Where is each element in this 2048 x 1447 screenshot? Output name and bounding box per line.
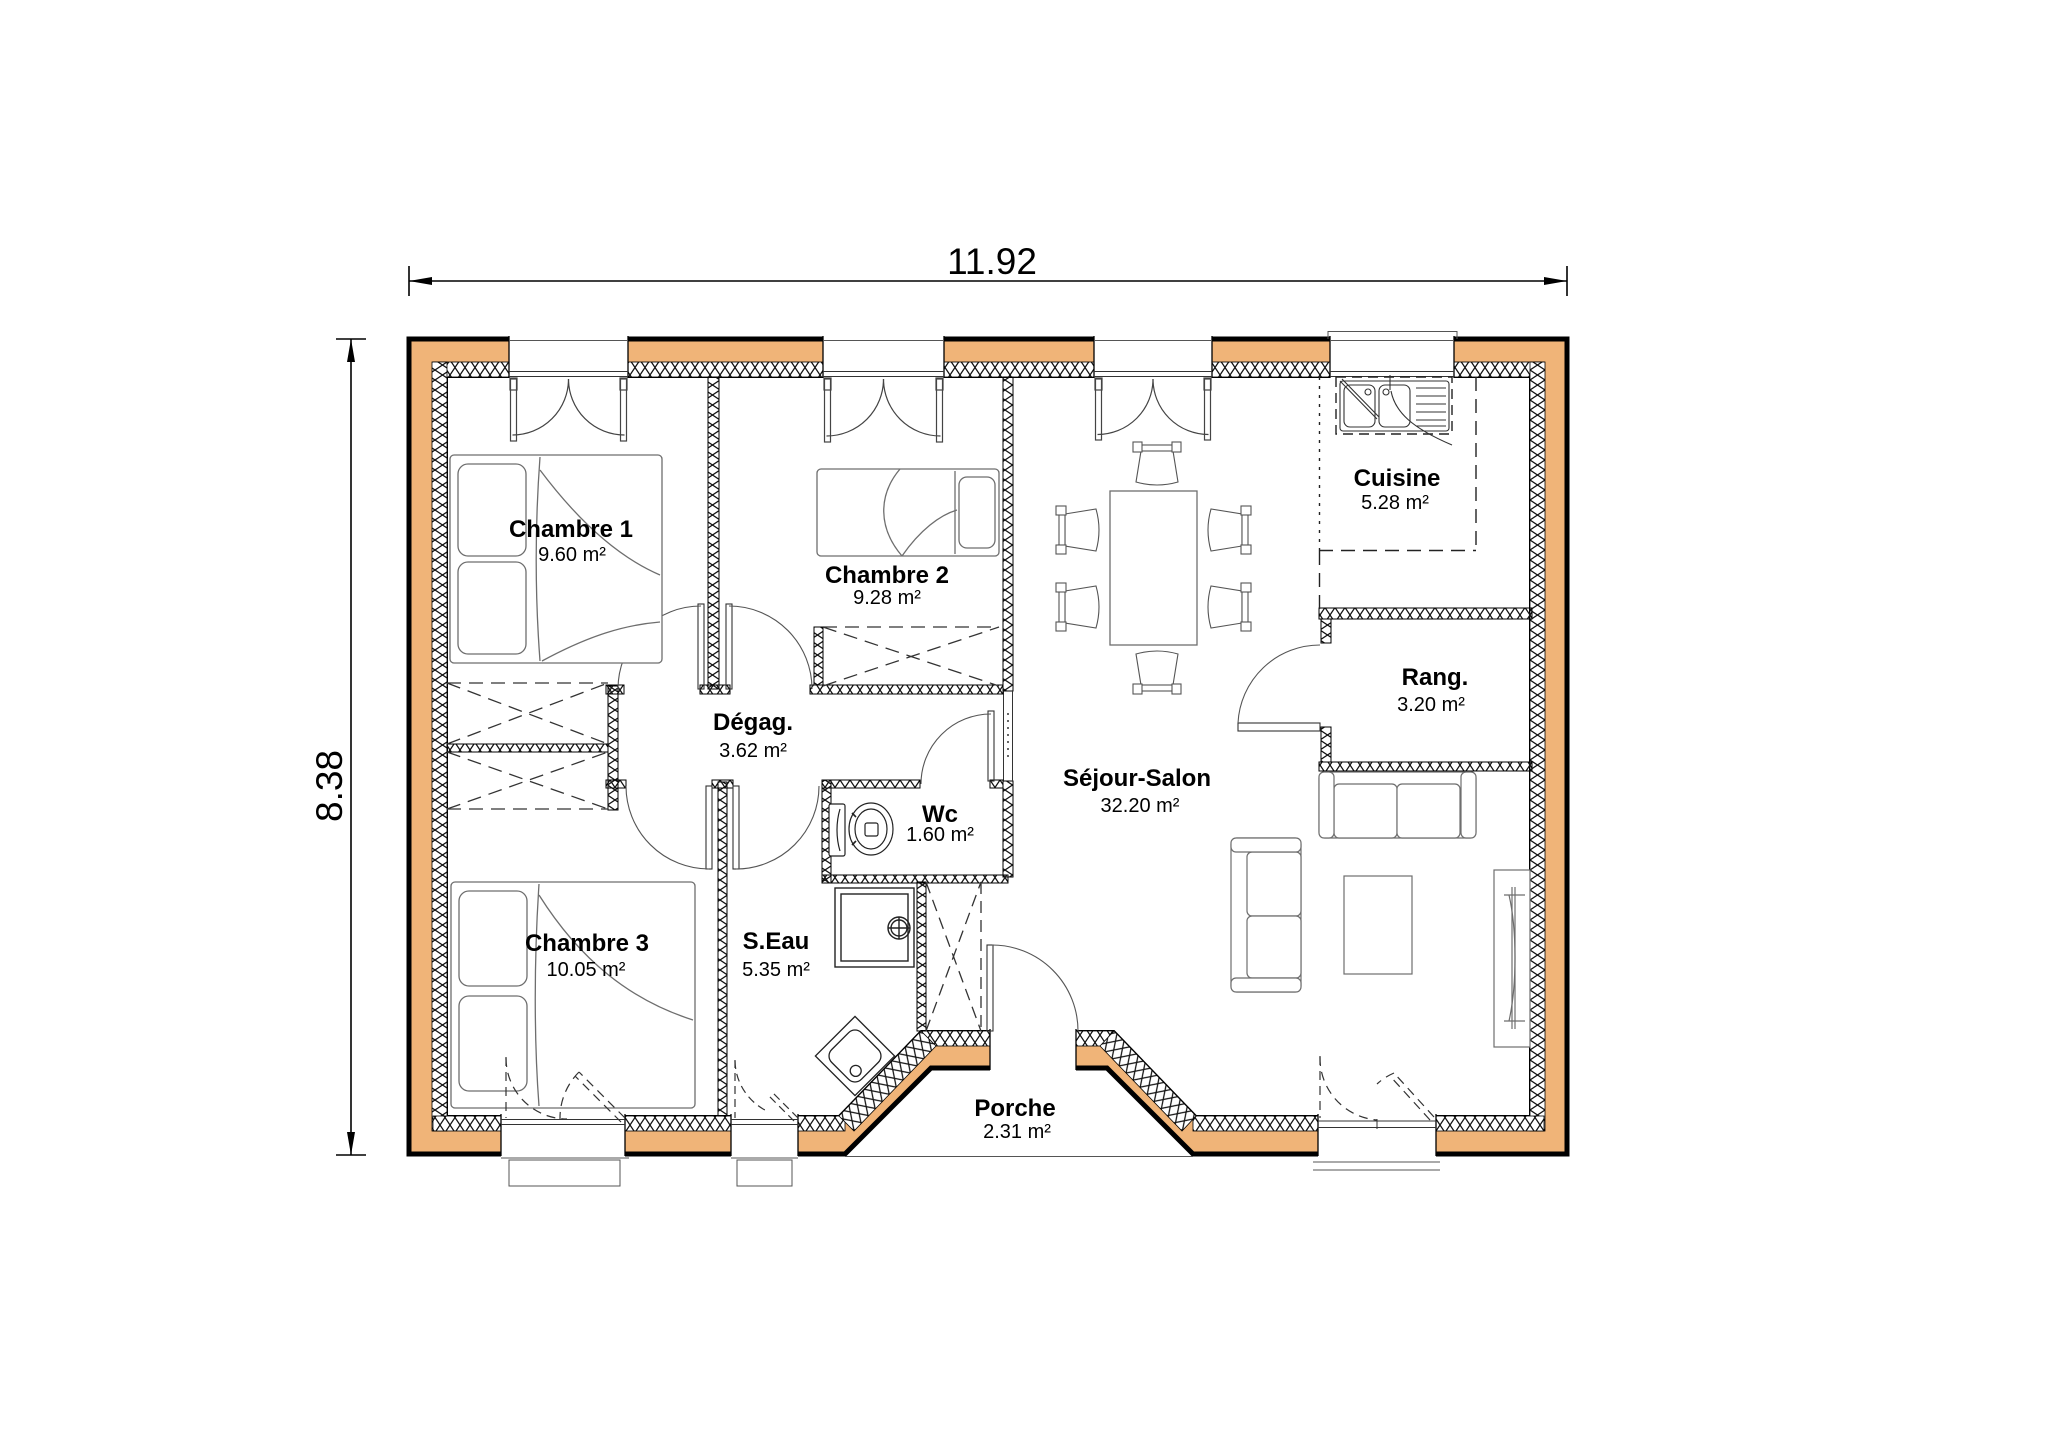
svg-text:1.60 m²: 1.60 m² <box>906 824 974 846</box>
svg-text:9.28 m²: 9.28 m² <box>853 587 921 609</box>
svg-text:Dégag.: Dégag. <box>713 709 793 736</box>
svg-text:2.31 m²: 2.31 m² <box>983 1121 1051 1143</box>
svg-text:Chambre 2: Chambre 2 <box>825 562 949 589</box>
svg-text:8.38: 8.38 <box>309 750 350 822</box>
svg-text:9.60 m²: 9.60 m² <box>538 544 606 566</box>
svg-text:32.20 m²: 32.20 m² <box>1101 795 1180 817</box>
svg-text:Séjour-Salon: Séjour-Salon <box>1063 765 1211 792</box>
svg-text:Chambre 1: Chambre 1 <box>509 516 633 543</box>
svg-text:Porche: Porche <box>974 1095 1055 1122</box>
svg-text:Cuisine: Cuisine <box>1354 465 1441 492</box>
svg-text:11.92: 11.92 <box>947 241 1037 282</box>
svg-text:10.05 m²: 10.05 m² <box>547 959 626 981</box>
svg-text:5.28 m²: 5.28 m² <box>1361 492 1429 514</box>
svg-text:S.Eau: S.Eau <box>743 928 810 955</box>
svg-text:Chambre 3: Chambre 3 <box>525 930 649 957</box>
svg-text:Rang.: Rang. <box>1402 664 1469 691</box>
svg-text:3.62 m²: 3.62 m² <box>719 740 787 762</box>
svg-text:3.20 m²: 3.20 m² <box>1397 694 1465 716</box>
svg-text:5.35 m²: 5.35 m² <box>742 959 810 981</box>
